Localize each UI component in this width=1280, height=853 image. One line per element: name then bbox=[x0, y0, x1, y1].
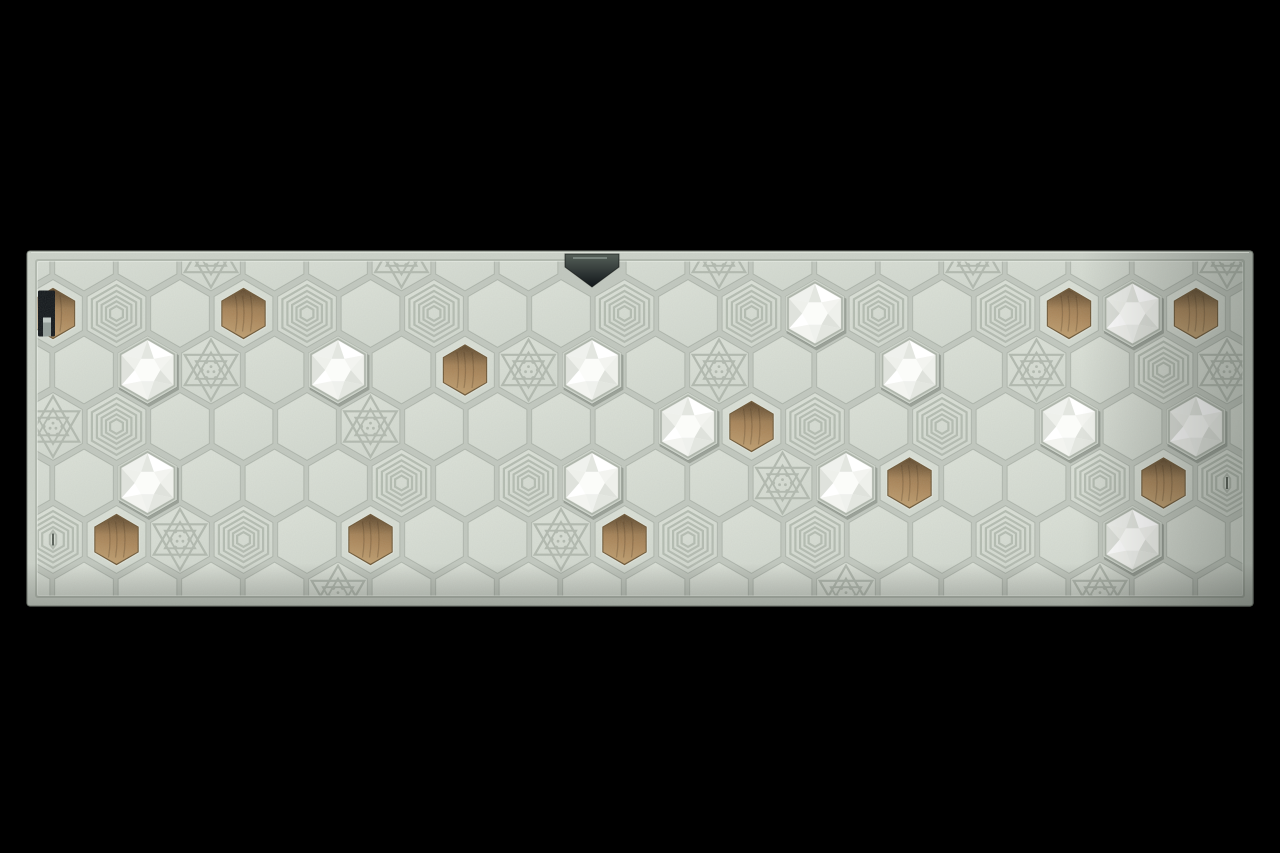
edge-shadow-bottom bbox=[27, 251, 1253, 606]
hex-panel-photo bbox=[0, 0, 1280, 853]
photo-backdrop bbox=[0, 0, 1280, 853]
concrete-panel bbox=[0, 223, 1280, 630]
